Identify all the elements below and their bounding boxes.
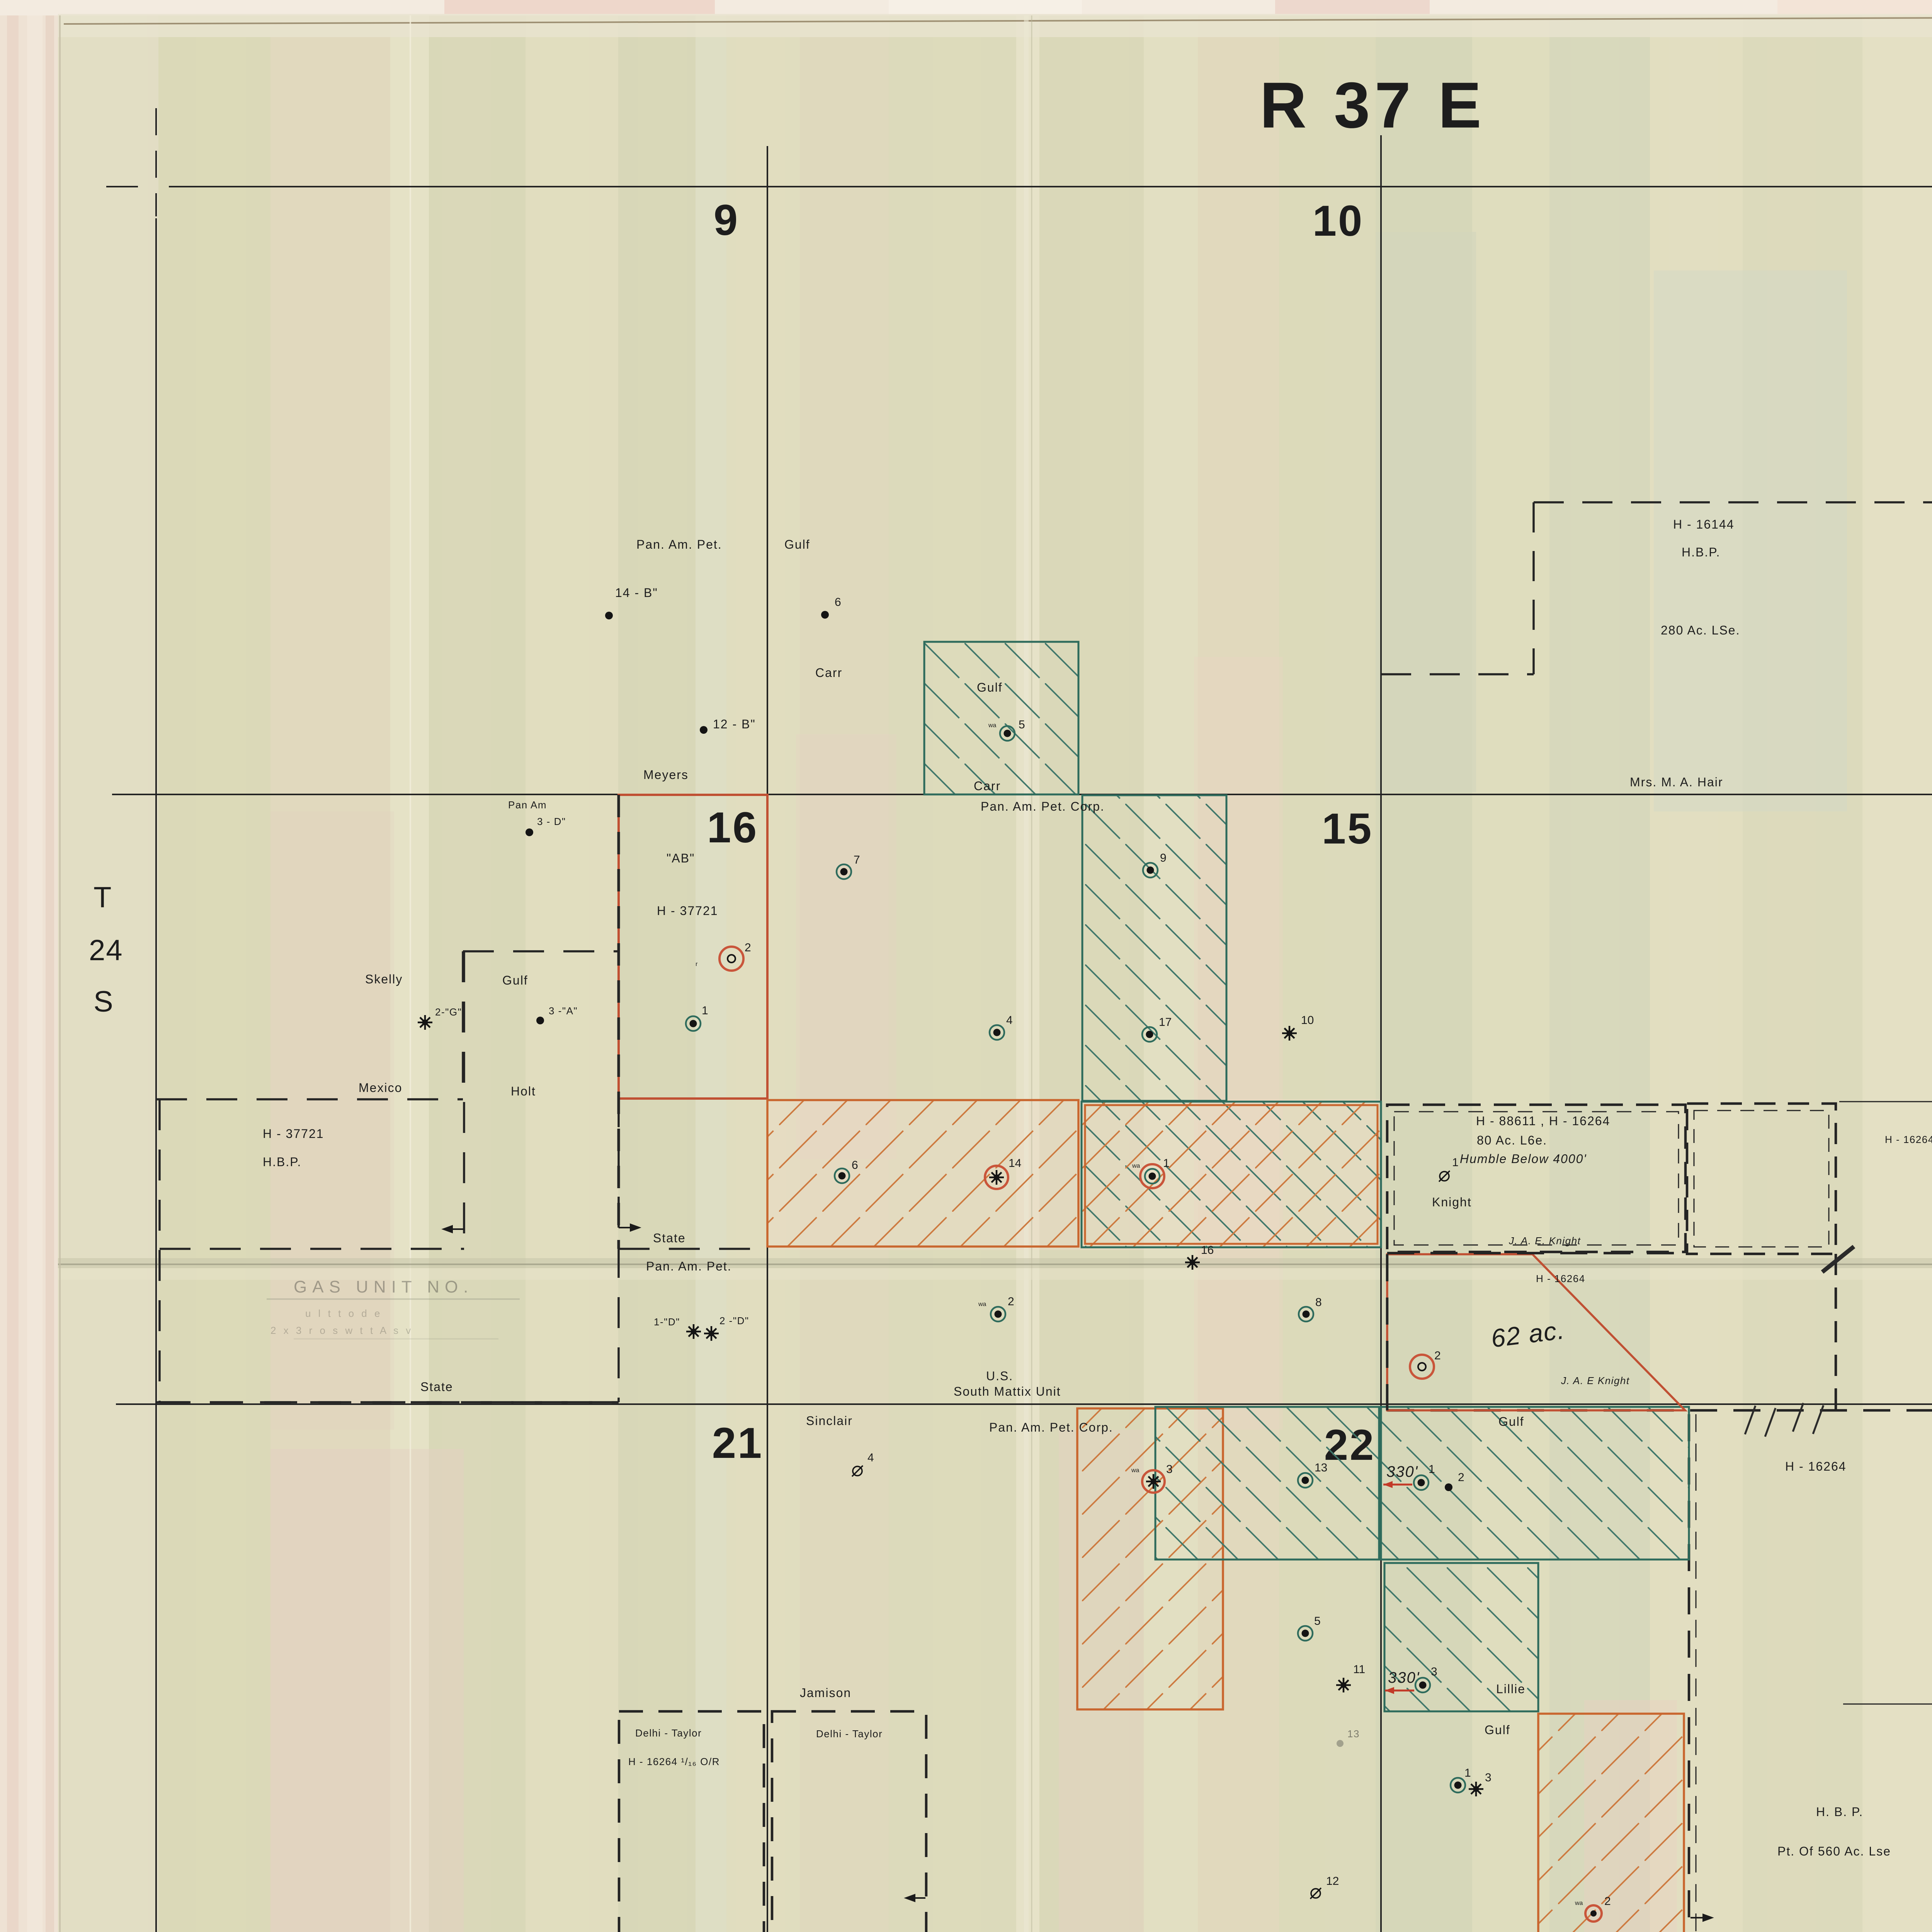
svg-text:16: 16: [1201, 1244, 1214, 1257]
svg-text:H - 88611 , H - 16264: H - 88611 , H - 16264: [1476, 1114, 1610, 1128]
svg-text:9: 9: [1160, 852, 1167, 864]
svg-text:2: 2: [1434, 1349, 1441, 1362]
svg-text:Pan. Am. Pet. Corp.: Pan. Am. Pet. Corp.: [989, 1420, 1113, 1434]
svg-text:1: 1: [1163, 1157, 1170, 1170]
svg-text:Gulf: Gulf: [784, 537, 810, 551]
svg-text:2-"G": 2-"G": [435, 1006, 462, 1018]
svg-text:State: State: [653, 1231, 686, 1245]
svg-text:H - 37721: H - 37721: [263, 1127, 324, 1141]
svg-text:J. A. E. Knight: J. A. E. Knight: [1509, 1235, 1581, 1247]
svg-text:3 -"A": 3 -"A": [549, 1005, 578, 1017]
svg-text:J. A. E Knight: J. A. E Knight: [1561, 1375, 1630, 1386]
svg-text:2: 2: [1604, 1895, 1611, 1908]
svg-text:"AB": "AB": [667, 851, 695, 865]
svg-text:14 - B": 14 - B": [615, 586, 658, 600]
svg-text:Pan. Am. Pet. Corp.: Pan. Am. Pet. Corp.: [981, 799, 1105, 813]
svg-text:12: 12: [1326, 1875, 1339, 1888]
svg-text:H - 16264: H - 16264: [1885, 1134, 1932, 1145]
svg-text:U.S.: U.S.: [986, 1369, 1013, 1383]
svg-text:Holt: Holt: [511, 1084, 536, 1098]
svg-text:3: 3: [1431, 1665, 1437, 1678]
svg-text:280 Ac. LSe.: 280 Ac. LSe.: [1661, 623, 1740, 637]
svg-text:7: 7: [854, 854, 860, 866]
svg-text:Lillie: Lillie: [1496, 1682, 1526, 1696]
svg-text:6: 6: [835, 596, 841, 609]
svg-text:80 Ac. L6e.: 80 Ac. L6e.: [1477, 1133, 1547, 1147]
svg-text:1: 1: [1452, 1156, 1459, 1169]
svg-text:13: 13: [1315, 1461, 1327, 1474]
svg-text:H.B.P.: H.B.P.: [1682, 545, 1720, 559]
svg-text:2: 2: [1008, 1295, 1014, 1308]
svg-text:Meyers: Meyers: [643, 768, 689, 782]
svg-text:Sinclair: Sinclair: [806, 1414, 853, 1428]
svg-text:Mrs. M. A. Hair: Mrs. M. A. Hair: [1630, 775, 1723, 789]
svg-text:3: 3: [1485, 1771, 1492, 1784]
svg-text:15: 15: [1322, 804, 1373, 853]
svg-text:H.B.P.: H.B.P.: [263, 1155, 301, 1169]
svg-text:Pan. Am. Pet.: Pan. Am. Pet.: [646, 1259, 732, 1273]
svg-text:3 - D": 3 - D": [537, 816, 566, 827]
svg-text:10: 10: [1313, 197, 1364, 245]
svg-text:R 37 E: R 37 E: [1260, 69, 1486, 141]
svg-text:24: 24: [89, 934, 123, 967]
svg-text:State: State: [420, 1380, 453, 1394]
svg-text:12 - B": 12 - B": [713, 717, 756, 731]
svg-text:H - 37721: H - 37721: [657, 904, 718, 918]
svg-text:Gulf: Gulf: [977, 680, 1003, 694]
svg-text:6: 6: [852, 1159, 858, 1172]
svg-text:Pt. Of 560 Ac. Lse: Pt. Of 560 Ac. Lse: [1777, 1844, 1891, 1858]
svg-text:S: S: [94, 985, 114, 1018]
svg-text:wa: wa: [1131, 1467, 1139, 1474]
svg-text:H - 16264: H - 16264: [1536, 1273, 1585, 1284]
svg-text:11: 11: [1353, 1663, 1365, 1676]
svg-text:2: 2: [745, 941, 751, 954]
svg-text:Delhi - Taylor: Delhi - Taylor: [816, 1728, 883, 1740]
svg-text:Carr: Carr: [815, 666, 842, 680]
svg-text:South Mattix Unit: South Mattix Unit: [954, 1384, 1061, 1398]
svg-text:5: 5: [1019, 718, 1025, 731]
svg-text:Gulf: Gulf: [1485, 1723, 1510, 1737]
svg-text:17: 17: [1159, 1016, 1172, 1029]
svg-text:wa: wa: [988, 722, 997, 729]
svg-text:Delhi - Taylor: Delhi - Taylor: [635, 1727, 702, 1739]
svg-text:1-"D": 1-"D": [654, 1316, 680, 1328]
svg-text:Pan Am: Pan Am: [508, 799, 547, 811]
svg-text:H. B. P.: H. B. P.: [1816, 1805, 1863, 1819]
svg-text:21: 21: [712, 1419, 764, 1467]
svg-text:Gulf: Gulf: [1498, 1415, 1524, 1429]
svg-text:1: 1: [1464, 1767, 1471, 1779]
svg-text:Pan. Am. Pet.: Pan. Am. Pet.: [636, 537, 722, 551]
svg-text:Carr: Carr: [974, 779, 1001, 793]
svg-text:H - 16144: H - 16144: [1673, 517, 1735, 531]
svg-text:H - 16264: H - 16264: [1785, 1459, 1847, 1473]
svg-text:GAS UNIT NO.: GAS UNIT NO.: [294, 1277, 473, 1296]
svg-text:1: 1: [702, 1004, 708, 1017]
svg-text:2 -"D": 2 -"D": [719, 1315, 749, 1327]
svg-text:2 x 3 r o s w t t: 2 x 3 r o s w t t A s v: [270, 1325, 413, 1336]
svg-text:Mexico: Mexico: [359, 1081, 402, 1095]
svg-text:H - 16264 ¹/₁₆ O/R: H - 16264 ¹/₁₆ O/R: [628, 1756, 720, 1767]
svg-text:Humble Below 4000': Humble Below 4000': [1460, 1152, 1587, 1166]
svg-text:Skelly: Skelly: [365, 972, 403, 986]
svg-text:330': 330': [1386, 1463, 1418, 1480]
svg-text:Gulf: Gulf: [502, 973, 528, 987]
svg-text:1: 1: [1429, 1463, 1435, 1476]
svg-text:T: T: [94, 881, 112, 914]
svg-text:9: 9: [714, 196, 739, 244]
svg-text:10: 10: [1301, 1014, 1314, 1027]
svg-text:r: r: [696, 961, 698, 968]
svg-text:16: 16: [707, 803, 759, 852]
svg-text:wa: wa: [1132, 1163, 1140, 1169]
svg-text:4: 4: [1006, 1014, 1013, 1027]
svg-text:wa: wa: [978, 1301, 986, 1308]
svg-text:13: 13: [1347, 1728, 1360, 1740]
svg-text:u l t t o d e: u l t t o d e: [305, 1308, 382, 1319]
svg-text:4: 4: [867, 1451, 874, 1464]
svg-text:5: 5: [1314, 1615, 1321, 1628]
svg-text:Jamison: Jamison: [800, 1686, 851, 1700]
svg-text:3: 3: [1166, 1463, 1173, 1476]
svg-text:2: 2: [1458, 1471, 1464, 1484]
svg-text:Knight: Knight: [1432, 1195, 1472, 1209]
svg-text:8: 8: [1315, 1296, 1322, 1309]
svg-text:14: 14: [1009, 1157, 1021, 1170]
svg-text:wa: wa: [1575, 1900, 1583, 1906]
